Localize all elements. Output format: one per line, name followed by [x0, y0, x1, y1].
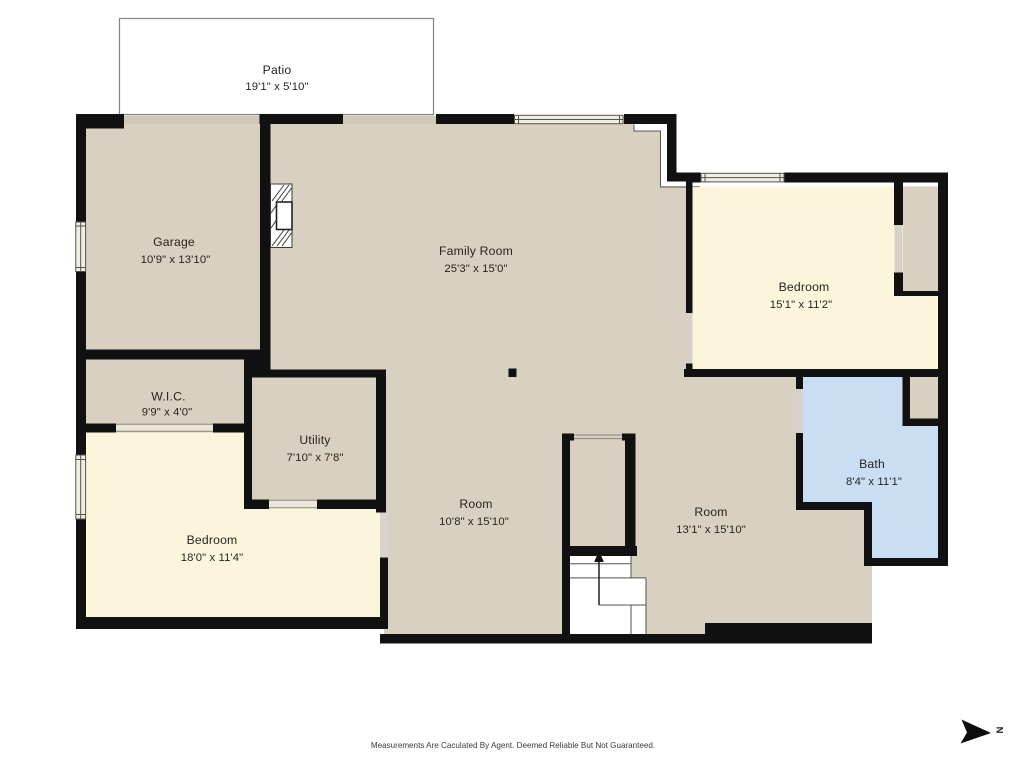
svg-text:13'1" x 15'10": 13'1" x 15'10" [676, 524, 746, 536]
svg-text:Room: Room [694, 505, 727, 519]
svg-text:Garage: Garage [153, 235, 195, 249]
svg-text:Measurements Are Caculated By: Measurements Are Caculated By Agent. Dee… [371, 741, 655, 750]
svg-text:Family Room: Family Room [439, 244, 513, 258]
svg-text:W.I.C.: W.I.C. [151, 390, 185, 404]
svg-text:19'1" x 5'10": 19'1" x 5'10" [245, 81, 308, 93]
svg-text:Bedroom: Bedroom [187, 533, 238, 547]
svg-text:Patio: Patio [263, 63, 292, 77]
svg-text:Bath: Bath [859, 457, 885, 471]
svg-text:N: N [993, 727, 1004, 734]
svg-text:9'9" x 4'0": 9'9" x 4'0" [142, 407, 193, 419]
svg-text:25'3" x 15'0": 25'3" x 15'0" [444, 263, 507, 275]
svg-text:8'4" x 11'1": 8'4" x 11'1" [846, 476, 902, 488]
svg-text:Utility: Utility [299, 433, 331, 447]
svg-text:10'9" x 13'10": 10'9" x 13'10" [141, 254, 211, 266]
svg-text:15'1" x 11'2": 15'1" x 11'2" [770, 299, 832, 311]
svg-text:Bedroom: Bedroom [779, 280, 830, 294]
svg-text:7'10" x 7'8": 7'10" x 7'8" [287, 452, 344, 464]
svg-text:18'0" x 11'4": 18'0" x 11'4" [181, 552, 243, 564]
svg-text:Room: Room [459, 497, 492, 511]
svg-text:10'8" x 15'10": 10'8" x 15'10" [439, 516, 509, 528]
